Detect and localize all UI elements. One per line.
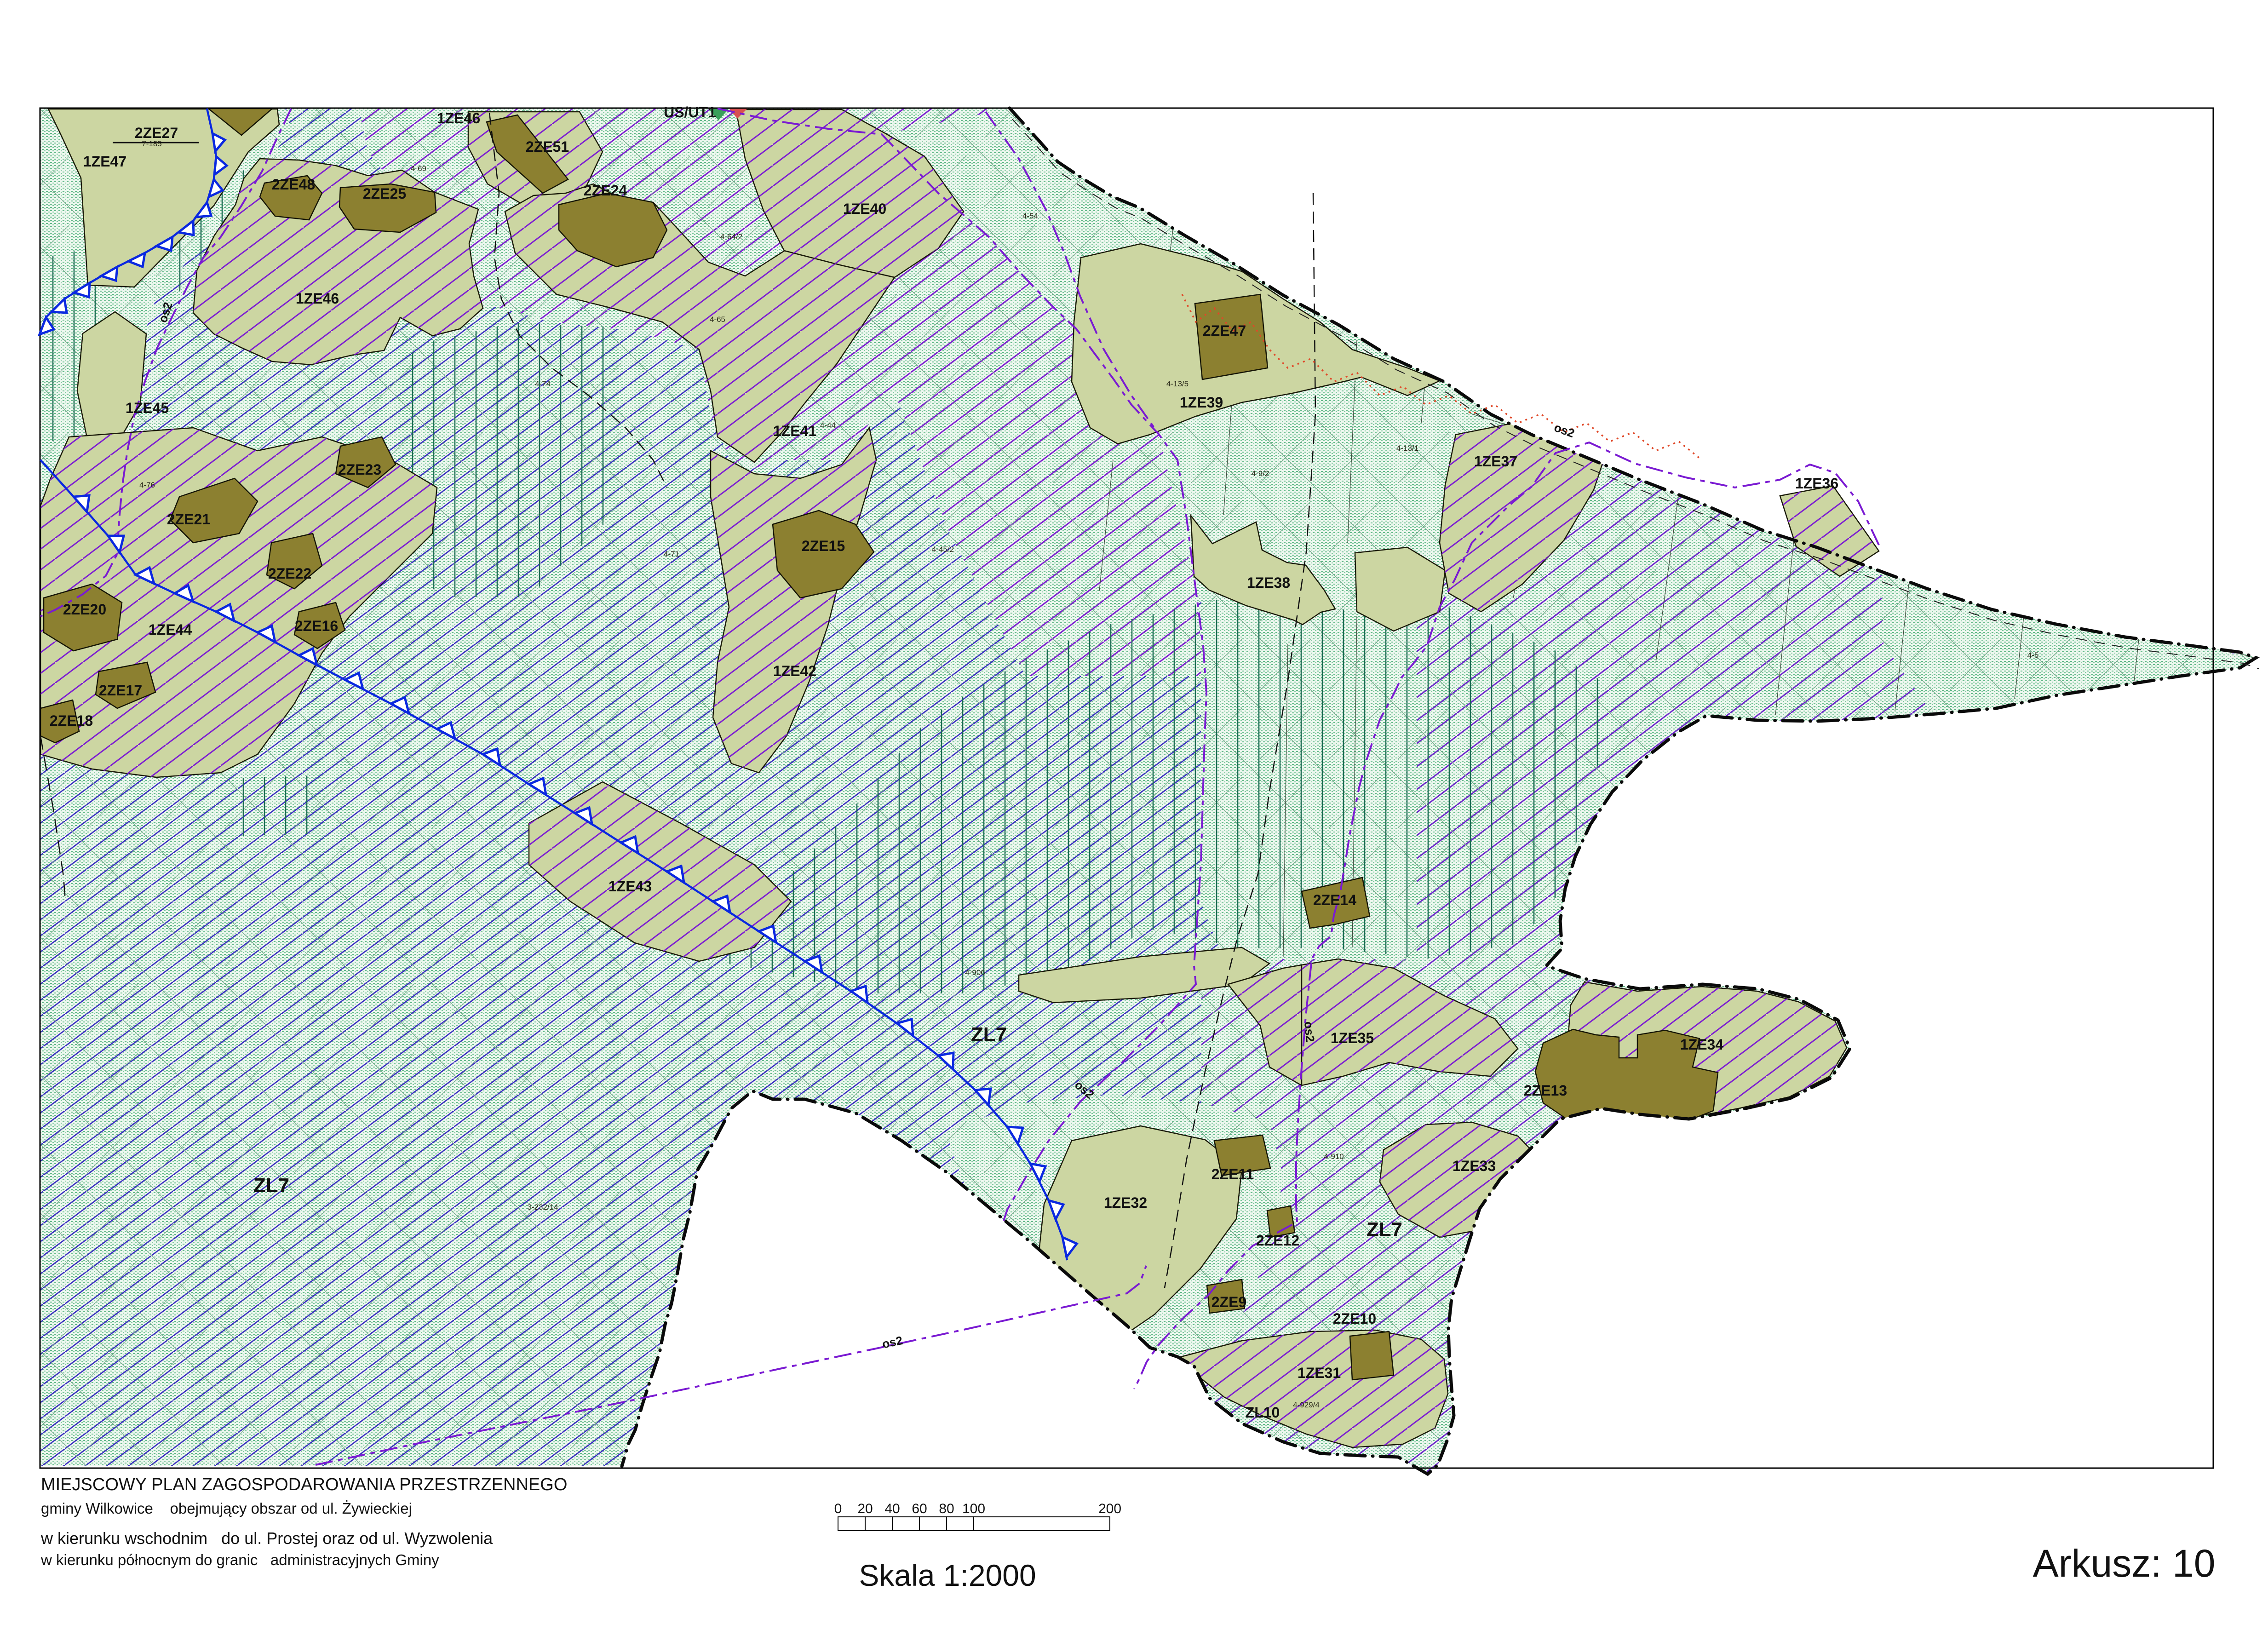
svg-text:2ZE9: 2ZE9 — [1212, 1294, 1246, 1310]
svg-text:1ZE32: 1ZE32 — [1104, 1194, 1147, 1211]
svg-text:1ZE45: 1ZE45 — [126, 400, 169, 416]
svg-text:4-64/2: 4-64/2 — [720, 232, 742, 241]
svg-text:4-906: 4-906 — [965, 968, 985, 977]
svg-text:2ZE25: 2ZE25 — [363, 185, 406, 202]
svg-text:40: 40 — [884, 1501, 900, 1516]
svg-text:2ZE23: 2ZE23 — [338, 461, 381, 478]
svg-text:4-929/4: 4-929/4 — [1293, 1400, 1320, 1409]
svg-text:2ZE16: 2ZE16 — [295, 618, 338, 634]
svg-text:Skala 1:2000: Skala 1:2000 — [859, 1558, 1036, 1592]
svg-text:2ZE47: 2ZE47 — [1203, 322, 1246, 339]
svg-text:w kierunku wschodnim do ul.: w kierunku wschodnim do ul. Prostej oraz… — [40, 1529, 493, 1548]
svg-text:os2: os2 — [1302, 1021, 1317, 1043]
svg-text:1ZE36: 1ZE36 — [1795, 475, 1838, 492]
svg-text:4-13/5: 4-13/5 — [1166, 379, 1189, 388]
svg-text:4-71: 4-71 — [664, 550, 679, 558]
svg-text:20: 20 — [857, 1501, 873, 1516]
svg-text:1ZE31: 1ZE31 — [1298, 1365, 1341, 1381]
svg-text:80: 80 — [939, 1501, 954, 1516]
svg-text:1ZE42: 1ZE42 — [773, 663, 816, 679]
svg-text:4-76: 4-76 — [139, 481, 155, 489]
svg-text:Arkusz: 10: Arkusz: 10 — [2033, 1542, 2216, 1585]
svg-text:4-45/2: 4-45/2 — [932, 545, 954, 554]
svg-text:1ZE46: 1ZE46 — [437, 110, 480, 126]
svg-text:0: 0 — [834, 1501, 842, 1516]
svg-text:ZL10: ZL10 — [1246, 1404, 1280, 1421]
svg-text:4-9/2: 4-9/2 — [1252, 469, 1269, 478]
svg-text:US/UT1: US/UT1 — [664, 104, 716, 121]
svg-text:2ZE20: 2ZE20 — [63, 601, 106, 618]
svg-text:2ZE51: 2ZE51 — [526, 138, 569, 155]
svg-text:200: 200 — [1098, 1501, 1121, 1516]
svg-text:1ZE34: 1ZE34 — [1680, 1036, 1723, 1053]
svg-text:MIEJSCOWY PLAN ZAGOSPODAROWANI: MIEJSCOWY PLAN ZAGOSPODAROWANIA PRZESTRZ… — [41, 1475, 567, 1494]
svg-text:2ZE27: 2ZE27 — [135, 125, 178, 141]
svg-text:7-185: 7-185 — [142, 139, 161, 148]
svg-text:2ZE22: 2ZE22 — [268, 565, 311, 582]
svg-text:4-44: 4-44 — [820, 421, 836, 430]
svg-text:1ZE41: 1ZE41 — [773, 423, 816, 439]
svg-text:4-65: 4-65 — [710, 315, 725, 324]
svg-text:1ZE33: 1ZE33 — [1453, 1158, 1496, 1174]
svg-text:4-13/1: 4-13/1 — [1396, 444, 1418, 453]
svg-text:1ZE38: 1ZE38 — [1247, 574, 1290, 591]
svg-text:2ZE13: 2ZE13 — [1524, 1082, 1567, 1099]
svg-text:1ZE39: 1ZE39 — [1180, 394, 1223, 411]
svg-text:2ZE10: 2ZE10 — [1333, 1310, 1376, 1327]
svg-text:1ZE35: 1ZE35 — [1331, 1030, 1374, 1046]
svg-text:1ZE43: 1ZE43 — [609, 878, 652, 895]
svg-text:2ZE48: 2ZE48 — [272, 176, 315, 193]
svg-text:2ZE17: 2ZE17 — [99, 682, 142, 699]
svg-text:4-54: 4-54 — [1022, 212, 1038, 220]
svg-text:1ZE46: 1ZE46 — [296, 290, 339, 307]
svg-text:1ZE44: 1ZE44 — [149, 621, 192, 638]
svg-text:2ZE12: 2ZE12 — [1256, 1232, 1299, 1249]
svg-text:100: 100 — [962, 1501, 985, 1516]
svg-text:2ZE18: 2ZE18 — [50, 712, 93, 729]
svg-text:gminy Wilkowice obejmujący: gminy Wilkowice obejmujący obszar od ul.… — [41, 1500, 412, 1517]
svg-text:ZL7: ZL7 — [971, 1023, 1007, 1046]
svg-text:1ZE40: 1ZE40 — [843, 201, 886, 217]
svg-text:3-232/14: 3-232/14 — [527, 1203, 558, 1211]
svg-text:ZL7: ZL7 — [253, 1174, 289, 1197]
svg-text:1ZE37: 1ZE37 — [1474, 453, 1517, 470]
svg-text:4-5: 4-5 — [2027, 651, 2039, 660]
svg-text:w kierunku północnym do granic: w kierunku północnym do granic administr… — [40, 1551, 439, 1568]
svg-text:2ZE11: 2ZE11 — [1212, 1166, 1254, 1182]
svg-text:2ZE15: 2ZE15 — [802, 538, 845, 554]
svg-text:60: 60 — [912, 1501, 927, 1516]
svg-text:2ZE14: 2ZE14 — [1313, 892, 1356, 908]
svg-text:1ZE47: 1ZE47 — [83, 153, 126, 170]
svg-text:2ZE24: 2ZE24 — [584, 182, 627, 199]
svg-text:4-910: 4-910 — [1324, 1152, 1344, 1161]
svg-text:4-74: 4-74 — [535, 379, 551, 388]
svg-text:ZL7: ZL7 — [1367, 1218, 1402, 1241]
svg-text:4-69: 4-69 — [411, 164, 426, 173]
svg-text:2ZE21: 2ZE21 — [167, 511, 210, 528]
